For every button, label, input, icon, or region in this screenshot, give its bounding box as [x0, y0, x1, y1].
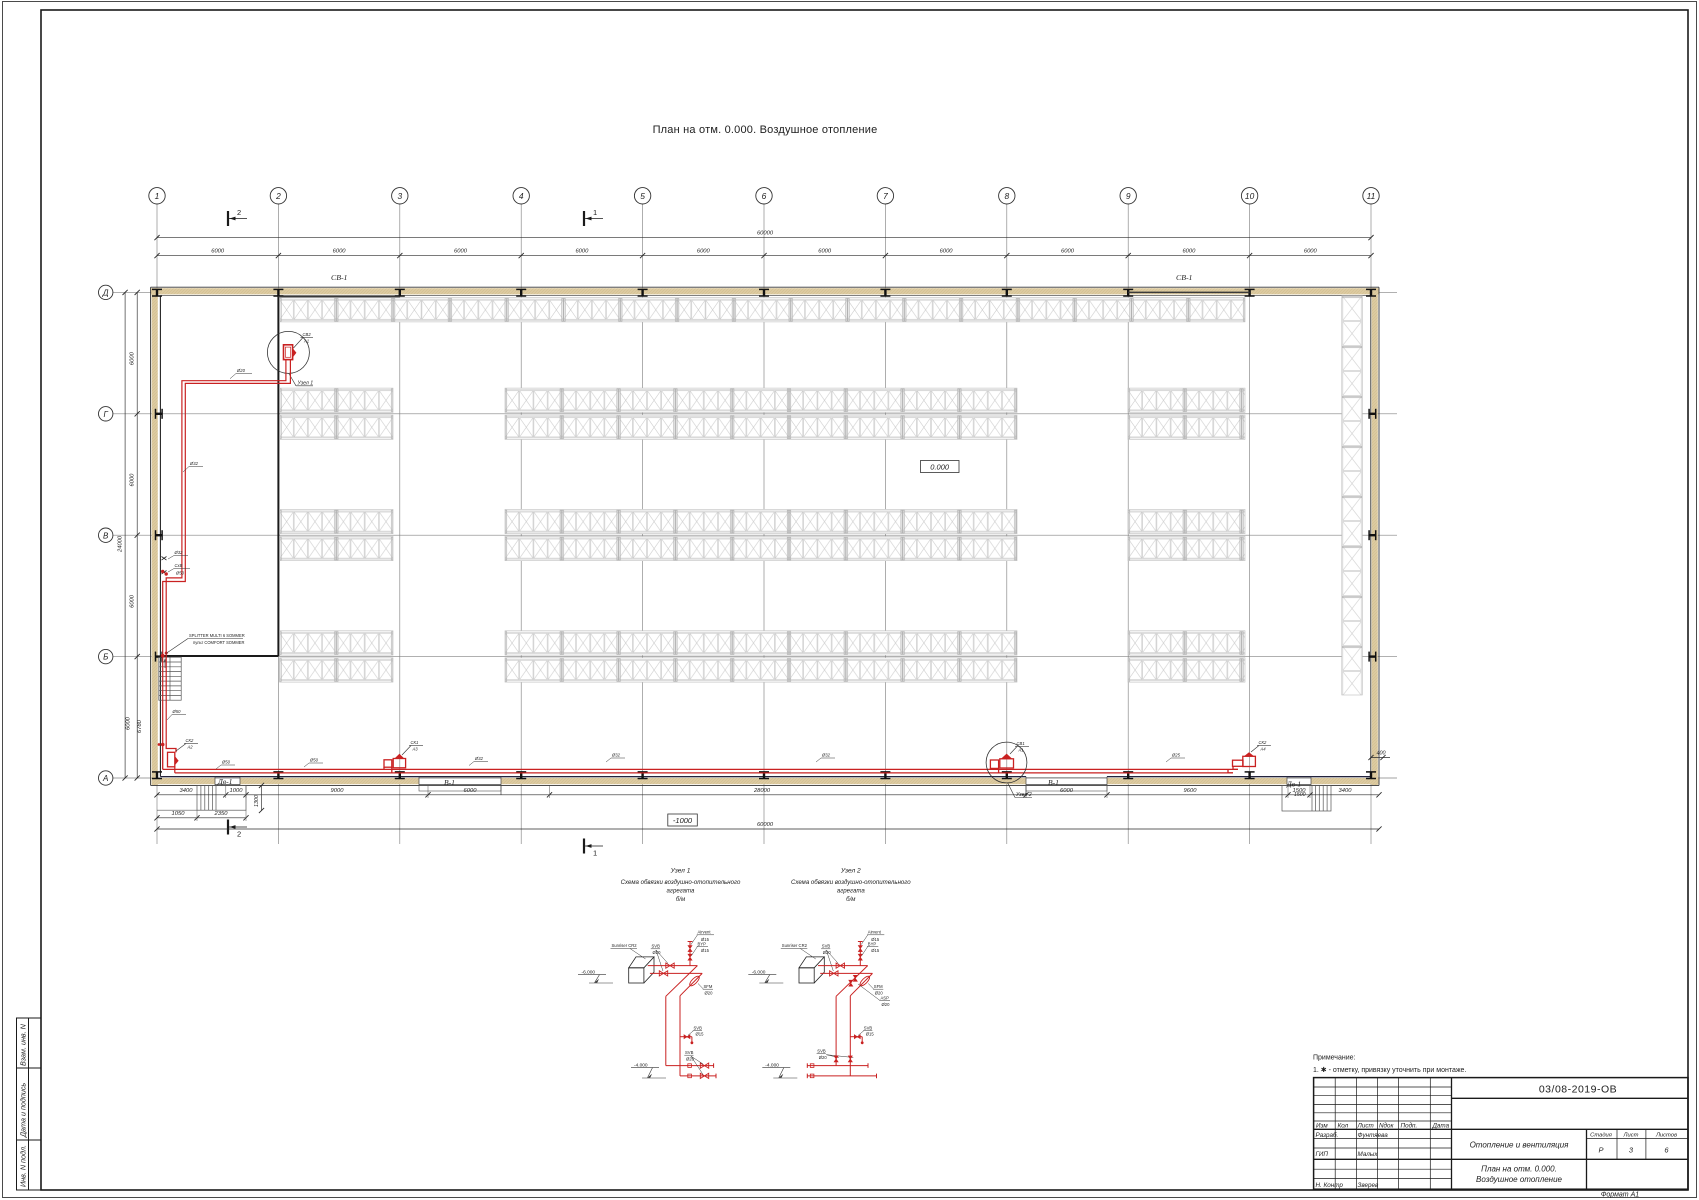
svg-text:Лист: Лист: [1623, 1132, 1639, 1138]
svg-text:пульт COMFORT SOMMER: пульт COMFORT SOMMER: [193, 640, 245, 645]
svg-text:Примечание:: Примечание:: [1313, 1055, 1356, 1062]
svg-text:6000: 6000: [1060, 788, 1074, 794]
svg-text:А3: А3: [412, 747, 419, 752]
svg-text:6000: 6000: [1304, 249, 1318, 255]
svg-text:SVB: SVB: [822, 944, 831, 949]
svg-text:Б: Б: [103, 653, 108, 662]
svg-text:4: 4: [519, 191, 524, 201]
svg-text:Лист: Лист: [1357, 1123, 1374, 1130]
svg-text:SPLITTER MULTI 6 SOMMER: SPLITTER MULTI 6 SOMMER: [189, 633, 245, 638]
svg-text:Листов: Листов: [1655, 1132, 1677, 1138]
svg-text:24000: 24000: [118, 535, 124, 553]
svg-text:1000: 1000: [230, 788, 244, 794]
svg-text:Н. Контр: Н. Контр: [1316, 1182, 1344, 1189]
svg-text:6: 6: [1664, 1146, 1669, 1155]
svg-text:6: 6: [762, 191, 767, 201]
svg-text:СК1: СК1: [411, 740, 419, 745]
svg-text:агрегата: агрегата: [837, 888, 866, 895]
svg-text:6000: 6000: [454, 249, 468, 255]
svg-text:60000: 60000: [757, 231, 774, 237]
svg-text:7: 7: [883, 191, 888, 201]
svg-text:Кол: Кол: [1338, 1123, 1349, 1130]
svg-text:Узел 1: Узел 1: [298, 380, 314, 386]
svg-text:28000: 28000: [753, 788, 771, 794]
svg-text:BYP: BYP: [868, 941, 877, 946]
svg-text:ASP: ASP: [881, 996, 890, 1001]
svg-text:9000: 9000: [331, 788, 345, 794]
svg-text:60000: 60000: [757, 822, 774, 828]
svg-text:03/08-2019-ОВ: 03/08-2019-ОВ: [1539, 1084, 1617, 1096]
svg-text:1500: 1500: [1294, 792, 1306, 798]
svg-text:6000: 6000: [1061, 249, 1075, 255]
svg-text:А: А: [102, 774, 108, 783]
svg-text:А4: А4: [1260, 747, 1267, 752]
svg-text:3: 3: [1629, 1146, 1634, 1155]
svg-text:б/м: б/м: [846, 896, 856, 903]
svg-text:Airvent: Airvent: [698, 930, 712, 935]
svg-text:6000: 6000: [211, 249, 225, 255]
svg-text:Ø50: Ø50: [221, 760, 231, 765]
svg-text:План на отм. 0.000.: План на отм. 0.000.: [1481, 1165, 1557, 1174]
svg-text:Ø50: Ø50: [175, 571, 185, 576]
svg-text:Малых: Малых: [1358, 1151, 1379, 1158]
svg-text:11: 11: [1367, 191, 1376, 201]
svg-text:5: 5: [640, 191, 645, 201]
svg-text:Ø15: Ø15: [696, 1032, 705, 1037]
svg-text:Узел 2: Узел 2: [1016, 792, 1032, 798]
svg-text:10: 10: [1245, 191, 1255, 201]
svg-text:6000: 6000: [333, 249, 347, 255]
svg-text:Воздушное отопление: Воздушное отопление: [1476, 1175, 1563, 1184]
svg-text:Nдок: Nдок: [1379, 1122, 1395, 1130]
svg-text:Ø50: Ø50: [172, 709, 182, 714]
svg-text:3400: 3400: [1339, 788, 1353, 794]
svg-text:6000: 6000: [575, 249, 589, 255]
svg-text:В-1: В-1: [444, 778, 455, 787]
svg-text:В: В: [103, 531, 109, 540]
svg-text:Ø32: Ø32: [474, 756, 484, 761]
svg-text:Отопление и вентиляция: Отопление и вентиляция: [1470, 1141, 1570, 1150]
svg-text:SVB: SVB: [817, 1049, 826, 1054]
svg-text:9600: 9600: [1184, 788, 1198, 794]
svg-text:3: 3: [397, 191, 402, 201]
svg-text:Sunriser CR2: Sunriser CR2: [612, 943, 638, 948]
svg-text:8: 8: [1004, 191, 1009, 201]
svg-text:Схема обвязки воздушно-отопите: Схема обвязки воздушно-отопительного: [621, 879, 741, 886]
svg-text:SVB: SVB: [694, 1026, 703, 1031]
svg-text:0.000: 0.000: [930, 462, 950, 471]
svg-text:План на отм. 0.000. Воздушное: План на отм. 0.000. Воздушное отопление: [653, 124, 878, 136]
svg-text:Ø32: Ø32: [611, 753, 621, 758]
svg-text:Дв-1: Дв-1: [1286, 780, 1301, 789]
svg-text:SVB: SVB: [652, 944, 661, 949]
svg-text:Р: Р: [1598, 1146, 1603, 1155]
svg-text:СВ-1: СВ-1: [331, 273, 348, 282]
svg-text:СК2: СК2: [1259, 740, 1267, 745]
svg-text:SFM: SFM: [704, 984, 713, 989]
svg-text:6000: 6000: [130, 351, 136, 365]
svg-text:Ø50: Ø50: [309, 758, 319, 763]
svg-text:6000: 6000: [940, 249, 954, 255]
svg-text:Фунтяева: Фунтяева: [1358, 1132, 1389, 1139]
svg-text:Схема обвязки воздушно-отопите: Схема обвязки воздушно-отопительного: [791, 879, 911, 886]
svg-text:Ø32: Ø32: [821, 753, 831, 758]
svg-text:Ø32: Ø32: [174, 550, 184, 555]
svg-text:6780: 6780: [137, 719, 143, 733]
svg-text:Стадия: Стадия: [1590, 1132, 1612, 1138]
svg-text:1: 1: [593, 849, 597, 858]
svg-text:Узел 2: Узел 2: [840, 868, 861, 875]
svg-text:Изм: Изм: [1316, 1123, 1328, 1130]
svg-text:1300: 1300: [254, 795, 260, 807]
svg-text:6000: 6000: [1182, 249, 1196, 255]
svg-text:9: 9: [1126, 191, 1131, 201]
svg-text:Разраб.: Разраб.: [1316, 1131, 1339, 1139]
svg-text:Sunriser CR2: Sunriser CR2: [782, 943, 808, 948]
svg-text:Airvent: Airvent: [868, 930, 882, 935]
svg-text:Взам. инв. N: Взам. инв. N: [19, 1023, 28, 1066]
svg-text:1050: 1050: [172, 811, 186, 817]
svg-text:2: 2: [237, 208, 241, 217]
svg-text:СК2: СК2: [186, 738, 194, 743]
svg-text:6000: 6000: [130, 473, 136, 487]
svg-text:1. ✱ - отметку, привязку уточн: 1. ✱ - отметку, привязку уточнить при мо…: [1313, 1066, 1466, 1074]
svg-text:Ø15: Ø15: [701, 948, 710, 953]
svg-text:1: 1: [155, 191, 160, 201]
svg-text:6000: 6000: [126, 716, 132, 730]
svg-text:агрегата: агрегата: [667, 888, 696, 895]
svg-text:BYP: BYP: [698, 941, 707, 946]
svg-text:Ø20: Ø20: [882, 1002, 891, 1007]
svg-text:2: 2: [237, 830, 241, 839]
svg-text:Дв-1: Дв-1: [217, 777, 232, 786]
svg-text:Дата: Дата: [1432, 1123, 1450, 1130]
svg-text:Формат А1: Формат А1: [1601, 1192, 1639, 1199]
svg-text:6000: 6000: [464, 788, 478, 794]
svg-text:Инв. N подл.: Инв. N подл.: [19, 1145, 28, 1187]
svg-text:Дата и подпись: Дата и подпись: [19, 1083, 28, 1138]
svg-text:Д: Д: [102, 289, 109, 298]
svg-text:SFM: SFM: [874, 984, 883, 989]
svg-text:А1: А1: [1018, 748, 1024, 753]
svg-text:2: 2: [275, 191, 281, 201]
svg-text:В-1: В-1: [1048, 778, 1059, 787]
svg-text:Ø25: Ø25: [1171, 753, 1181, 758]
svg-text:Узел 1: Узел 1: [670, 868, 691, 875]
svg-text:А1: А1: [303, 339, 309, 344]
svg-text:Ø20: Ø20: [236, 368, 246, 373]
svg-text:3400: 3400: [180, 788, 194, 794]
svg-text:Ø20: Ø20: [686, 1056, 695, 1061]
svg-text:SVB: SVB: [864, 1026, 873, 1031]
svg-text:Ø20: Ø20: [705, 991, 714, 996]
svg-text:1: 1: [593, 208, 597, 217]
svg-text:6000: 6000: [697, 249, 711, 255]
svg-text:Г: Г: [104, 410, 109, 419]
svg-text:А2: А2: [187, 745, 194, 750]
svg-text:СхВ: СхВ: [175, 563, 183, 568]
svg-text:Ø15: Ø15: [871, 948, 880, 953]
svg-text:б/м: б/м: [676, 896, 686, 903]
svg-text:Зверев: Зверев: [1358, 1182, 1380, 1189]
svg-text:-1000: -1000: [673, 816, 693, 825]
svg-text:2350: 2350: [214, 811, 229, 817]
svg-text:Ø32: Ø32: [189, 461, 199, 466]
svg-text:СВ1: СВ1: [1017, 741, 1025, 746]
svg-text:6000: 6000: [818, 249, 832, 255]
svg-text:6000: 6000: [130, 594, 136, 608]
svg-text:СВ2: СВ2: [303, 332, 312, 337]
svg-text:Подп.: Подп.: [1401, 1122, 1418, 1130]
svg-text:ГИП: ГИП: [1316, 1151, 1329, 1158]
svg-text:СВ-1: СВ-1: [1176, 273, 1193, 282]
svg-text:Ø15: Ø15: [866, 1032, 875, 1037]
svg-text:400: 400: [1377, 751, 1386, 757]
svg-text:Ø20: Ø20: [819, 1055, 828, 1060]
svg-text:SVB: SVB: [685, 1050, 694, 1055]
